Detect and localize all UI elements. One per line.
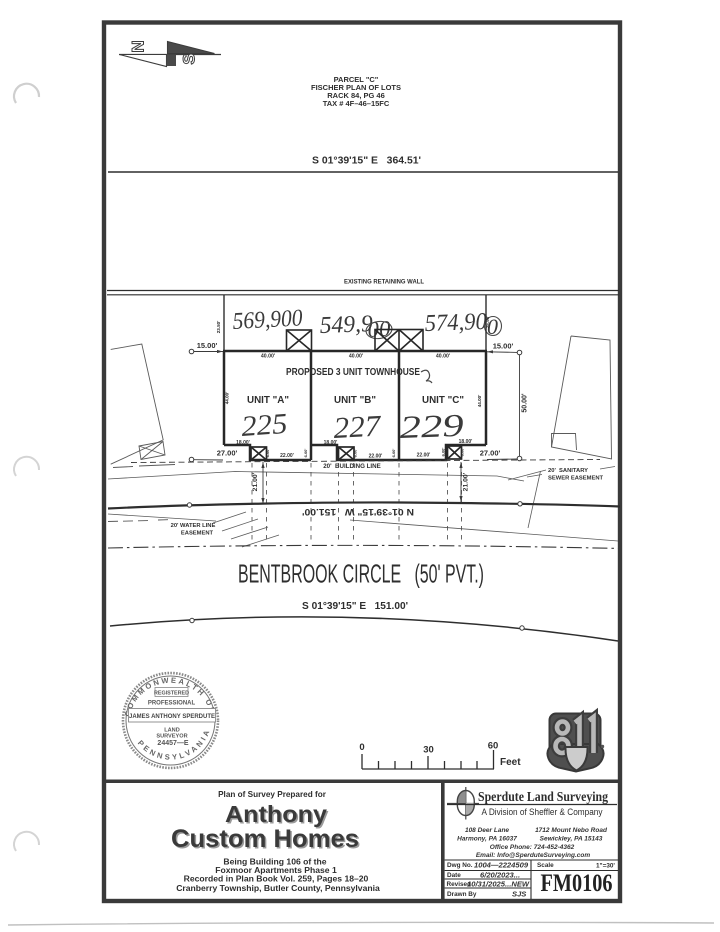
- svg-text:6.00': 6.00': [460, 448, 465, 457]
- svg-text:Recorded in Plan Book Vol. 259: Recorded in Plan Book Vol. 259, Pages 18…: [184, 874, 369, 884]
- svg-text:S: S: [179, 53, 198, 64]
- svg-text:6.00': 6.00': [265, 449, 270, 458]
- svg-text:20' WATER LINE: 20' WATER LINE: [171, 523, 216, 529]
- svg-text:UNIT "B": UNIT "B": [334, 395, 376, 406]
- svg-text:40.00': 40.00': [261, 354, 275, 360]
- svg-text:Office Phone: 724-452-4362: Office Phone: 724-452-4362: [490, 844, 575, 851]
- svg-text:225: 225: [240, 408, 288, 443]
- svg-text:20' BUILDING LINE: 20' BUILDING LINE: [323, 463, 381, 470]
- svg-text:SURVEYOR: SURVEYOR: [156, 734, 187, 740]
- svg-text:UNIT "C": UNIT "C": [422, 395, 464, 406]
- svg-text:Anthony: Anthony: [225, 801, 327, 827]
- svg-text:SJS: SJS: [512, 890, 526, 899]
- svg-text:S 01°39'15" E 151.00': S 01°39'15" E 151.00': [302, 601, 408, 612]
- svg-text:Dwg No.: Dwg No.: [447, 862, 473, 869]
- svg-text:Scale: Scale: [537, 862, 554, 869]
- svg-text:BENTBROOK CIRCLE (50' PVT.): BENTBROOK CIRCLE (50' PVT.): [238, 559, 484, 589]
- svg-text:Drawn By: Drawn By: [447, 891, 477, 898]
- svg-text:23.50': 23.50': [216, 321, 221, 334]
- svg-text:22.00': 22.00': [417, 453, 431, 459]
- svg-text:27.00': 27.00': [217, 449, 238, 458]
- svg-text:0: 0: [359, 742, 364, 753]
- svg-text:22.00': 22.00': [369, 454, 383, 460]
- svg-text:229: 229: [399, 407, 464, 445]
- svg-text:Date: Date: [447, 872, 461, 879]
- svg-text:FM0106: FM0106: [541, 870, 613, 897]
- svg-text:JAMES ANTHONY SPERDUTE: JAMES ANTHONY SPERDUTE: [129, 714, 215, 720]
- svg-text:6.00': 6.00': [441, 448, 446, 457]
- svg-text:227: 227: [333, 409, 384, 445]
- svg-text:REGISTERED: REGISTERED: [154, 691, 189, 697]
- svg-text:24457—E: 24457—E: [157, 740, 188, 747]
- svg-text:1712 Mount Nebo Road: 1712 Mount Nebo Road: [535, 827, 608, 834]
- svg-text:574,90: 574,90: [424, 309, 487, 337]
- svg-text:22.00': 22.00': [280, 453, 294, 459]
- svg-text:6/20/2023...: 6/20/2023...: [480, 871, 520, 880]
- svg-text:1"=30': 1"=30': [596, 863, 615, 870]
- svg-text:108 Deer Lane: 108 Deer Lane: [465, 827, 509, 834]
- svg-text:18.00': 18.00': [236, 440, 250, 446]
- svg-text:TAX # 4F–46–15FC: TAX # 4F–46–15FC: [323, 99, 390, 108]
- svg-text:15.00': 15.00': [493, 342, 514, 351]
- svg-text:20' SANITARY: 20' SANITARY: [548, 468, 588, 474]
- svg-text:PROFESSIONAL: PROFESSIONAL: [148, 701, 196, 707]
- svg-text:Feet: Feet: [500, 757, 521, 768]
- svg-text:UNIT "A": UNIT "A": [247, 395, 289, 406]
- svg-text:10/31/2025...NEW: 10/31/2025...NEW: [467, 880, 530, 889]
- svg-text:40.00': 40.00': [349, 354, 363, 360]
- svg-text:44.00': 44.00': [477, 395, 482, 408]
- svg-text:Sperdute Land Surveying: Sperdute Land Surveying: [478, 790, 608, 805]
- svg-text:44.00': 44.00': [225, 392, 230, 405]
- svg-text:15.00': 15.00': [197, 341, 218, 350]
- svg-text:Harmony, PA 16037: Harmony, PA 16037: [457, 836, 517, 843]
- svg-text:S 01°39'15" E 364.51': S 01°39'15" E 364.51': [312, 155, 421, 167]
- svg-text:60: 60: [488, 741, 499, 752]
- svg-text:6.00': 6.00': [391, 449, 396, 458]
- svg-text:21.00': 21.00': [252, 472, 259, 491]
- svg-text:EASEMENT: EASEMENT: [181, 531, 214, 537]
- svg-text:18.00': 18.00': [324, 440, 338, 446]
- svg-text:30: 30: [423, 745, 434, 756]
- svg-text:Cranberry Township, Butler Cou: Cranberry Township, Butler County, Penns…: [176, 883, 380, 893]
- svg-text:EXISTING RETAINING WALL: EXISTING RETAINING WALL: [344, 279, 424, 286]
- svg-text:25.98': 25.98': [485, 316, 490, 329]
- svg-text:50.00': 50.00': [522, 393, 529, 413]
- svg-text:6.00': 6.00': [303, 449, 308, 458]
- svg-text:Sewickley, PA 15143: Sewickley, PA 15143: [540, 836, 603, 843]
- svg-text:27.00': 27.00': [480, 449, 501, 458]
- svg-text:PROPOSED 3 UNIT TOWNHOUSE: PROPOSED 3 UNIT TOWNHOUSE: [286, 367, 420, 378]
- svg-text:N 01°39'15" W 151.00': N 01°39'15" W 151.00': [302, 506, 414, 517]
- svg-text:1004—2224509: 1004—2224509: [474, 861, 529, 870]
- svg-text:A Division of Sheffler & Compa: A Division of Sheffler & Company: [482, 807, 603, 817]
- svg-text:N: N: [128, 40, 147, 52]
- svg-text:Plan of Survey Prepared for: Plan of Survey Prepared for: [218, 790, 327, 799]
- svg-text:18.00': 18.00': [459, 439, 473, 445]
- svg-text:SEWER EASEMENT: SEWER EASEMENT: [548, 476, 604, 482]
- svg-text:21.00': 21.00': [463, 472, 470, 491]
- svg-text:6.00': 6.00': [353, 449, 358, 458]
- svg-text:549,9: 549,9: [319, 311, 373, 339]
- svg-text:Email: Info@SperduteSurveying.: Email: Info@SperduteSurveying.com: [476, 852, 591, 859]
- svg-text:Custom Homes: Custom Homes: [171, 825, 359, 853]
- svg-text:40.00': 40.00': [436, 354, 450, 360]
